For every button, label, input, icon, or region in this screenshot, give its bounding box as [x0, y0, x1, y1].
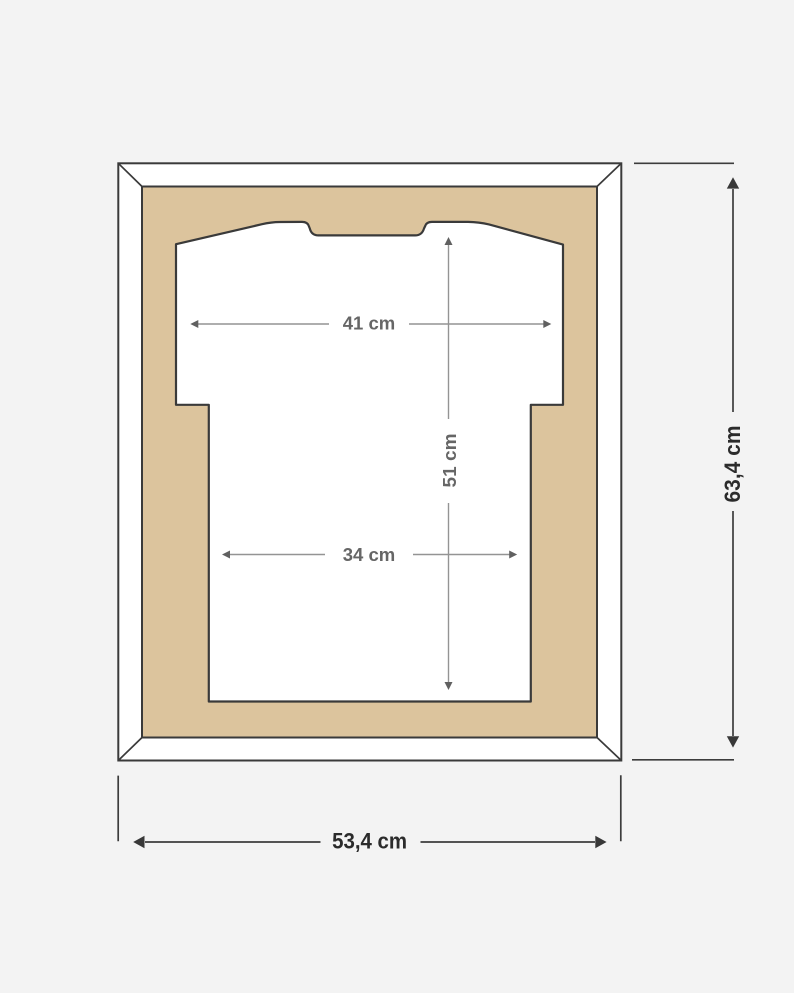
svg-text:51 cm: 51 cm	[439, 434, 460, 488]
svg-text:53,4 cm: 53,4 cm	[332, 828, 407, 853]
svg-text:41 cm: 41 cm	[343, 312, 395, 333]
svg-text:34 cm: 34 cm	[343, 544, 395, 565]
svg-text:63,4 cm: 63,4 cm	[720, 426, 745, 503]
